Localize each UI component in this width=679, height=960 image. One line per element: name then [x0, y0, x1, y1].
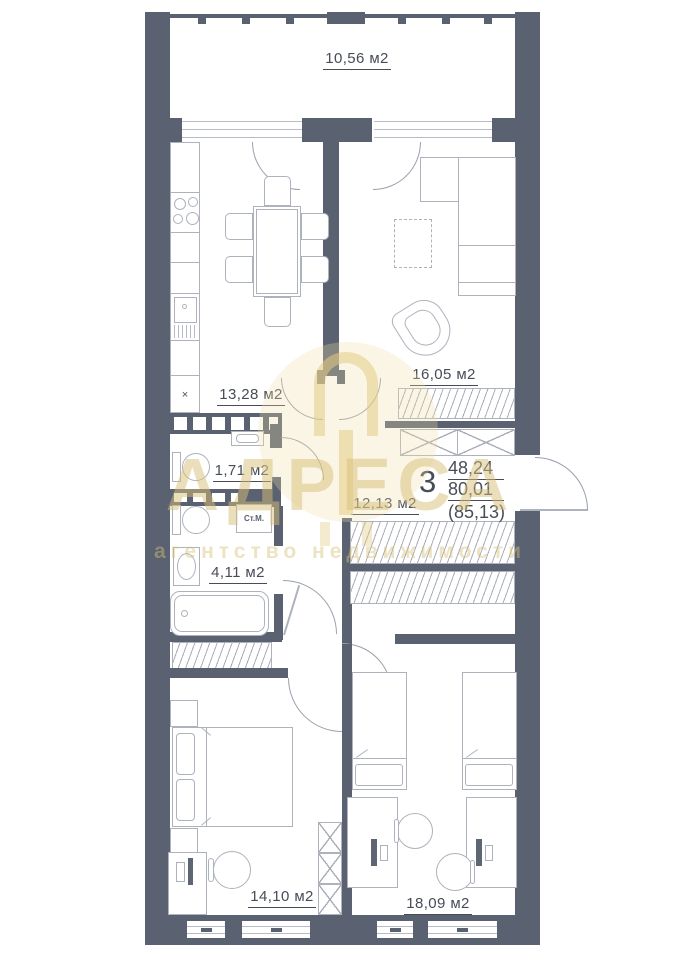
hallway-area-label: 12,13 м2 — [342, 495, 428, 512]
wall-segment — [145, 118, 182, 142]
window-mullion — [484, 14, 492, 24]
balcony-area-label: 10,56 м2 — [302, 50, 412, 67]
toilet-tank — [172, 452, 181, 482]
window-mullion — [442, 14, 450, 24]
wall-pier — [302, 118, 372, 142]
desk-chair — [213, 851, 251, 889]
chair-back — [208, 858, 214, 882]
wall-bedroom1-top — [145, 668, 288, 678]
toilet-area-label: 1,71 м2 — [204, 462, 280, 479]
closet-x-hall — [457, 429, 515, 456]
chair — [301, 213, 329, 240]
stove-burner — [188, 197, 198, 207]
bedroom2-area-label: 18,09 м2 — [394, 895, 482, 912]
chair-back — [394, 819, 399, 843]
wall-segment — [272, 433, 281, 441]
monitor — [371, 839, 377, 866]
wall-segment — [342, 564, 517, 571]
toilet-tank — [172, 505, 181, 535]
vent-shaft-wall — [170, 413, 282, 434]
area-value-2: 80,01 — [448, 480, 504, 501]
door-arc-toilet — [281, 437, 324, 480]
bedroom1-area-label: 14,10 м2 — [238, 888, 326, 905]
toilet-sink-bowl — [236, 434, 259, 443]
window-mullion — [198, 14, 206, 24]
vent-shaft-wall — [170, 489, 242, 506]
chair — [301, 256, 329, 283]
closet-x-hall — [400, 429, 458, 456]
bathroom-sink-bowl — [177, 553, 196, 580]
window-mullion — [242, 14, 250, 24]
wall-segment — [395, 634, 515, 644]
area-value-3: (85,13) — [448, 501, 504, 522]
stove-burner — [174, 198, 186, 210]
stove-burner — [173, 214, 183, 224]
coffee-table — [394, 219, 432, 268]
closet-x-bedroom1 — [318, 822, 342, 853]
stove-burner — [186, 212, 199, 225]
wardrobe-hatch-living — [398, 388, 515, 419]
window-line — [182, 129, 302, 130]
window-line — [374, 137, 492, 138]
keyboard — [380, 845, 388, 861]
window-line — [182, 137, 302, 138]
chair — [225, 256, 253, 283]
wall-segment — [492, 118, 540, 142]
rooms-count: 3 — [419, 464, 436, 500]
monitor — [188, 858, 193, 885]
window-line — [182, 121, 302, 122]
kitchen-sink — [174, 297, 197, 323]
window-mullion — [286, 14, 294, 24]
window-line — [374, 129, 492, 130]
living-area-label: 16,05 м2 — [398, 366, 490, 383]
fridge-mark: × — [170, 376, 200, 413]
window-mullion — [398, 14, 406, 24]
watermark-tower-base — [320, 522, 330, 546]
keyboard — [485, 845, 493, 861]
dining-table-top — [256, 209, 298, 294]
nightstand — [170, 828, 198, 853]
desk-chair — [436, 853, 474, 891]
area-values: 48,24 80,01 (85,13) — [448, 459, 504, 522]
floor-plan: × Ст.М. — [0, 0, 679, 960]
kitchen-area-label: 13,28 м2 — [205, 386, 297, 403]
wardrobe-hatch-hall-1 — [350, 521, 515, 564]
wardrobe-hatch-hall-2 — [350, 571, 515, 604]
pillow — [465, 764, 513, 786]
kitchen-counter — [170, 142, 200, 413]
window-pier — [327, 12, 365, 24]
sofa-body — [458, 157, 516, 296]
closet-x-bedroom1 — [318, 853, 342, 884]
pillow — [176, 733, 195, 775]
bathroom-area-label: 4,11 м2 — [198, 564, 278, 581]
watermark-subtitle: агентство недвижимости — [40, 540, 640, 564]
washing-machine: Ст.М. — [236, 504, 272, 533]
monitor — [476, 839, 482, 866]
pillow — [176, 779, 195, 821]
window-mullion — [201, 928, 212, 932]
door-arc-bedroom1 — [288, 678, 342, 732]
window-mullion — [271, 928, 282, 932]
door-arc-entrance — [535, 457, 588, 510]
chair-back — [470, 860, 475, 884]
window-mullion — [390, 928, 401, 932]
wall-segment — [385, 421, 515, 428]
area-value-1: 48,24 — [448, 459, 504, 480]
door-arc-living — [339, 378, 381, 420]
keyboard — [176, 862, 185, 882]
desk-chair — [397, 813, 433, 849]
toilet-bowl — [182, 506, 210, 534]
chair — [264, 176, 291, 206]
chair — [225, 213, 253, 240]
window-line — [374, 121, 492, 122]
door-arc-living-balcony — [373, 142, 421, 190]
sink-drainer — [174, 325, 197, 338]
chair — [264, 297, 291, 327]
window-mullion — [457, 928, 468, 932]
pillow — [355, 764, 403, 786]
sink-drain — [182, 304, 187, 309]
wall-left — [145, 12, 170, 945]
nightstand — [170, 700, 198, 727]
bathtub-drain — [181, 610, 188, 617]
wall-segment — [274, 506, 283, 546]
